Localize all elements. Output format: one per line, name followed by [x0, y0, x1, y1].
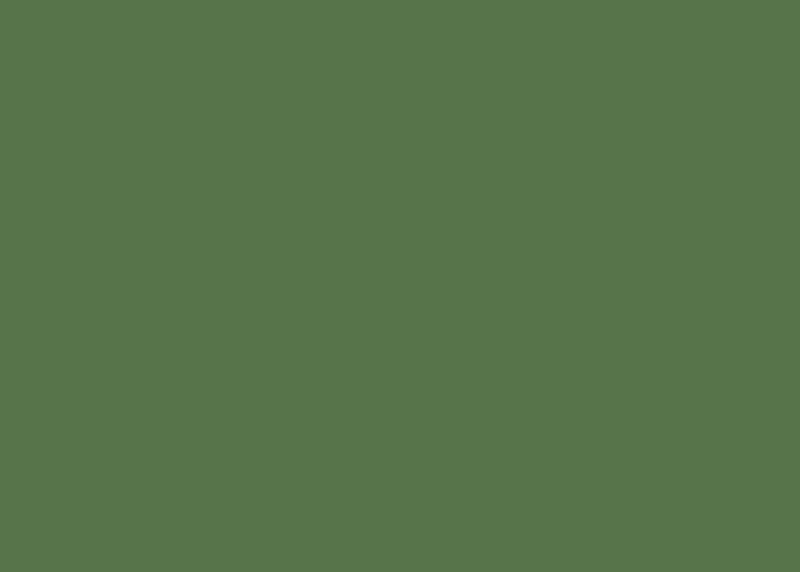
masterplan-rendering: [0, 0, 800, 572]
rendering-canvas: [0, 0, 800, 572]
